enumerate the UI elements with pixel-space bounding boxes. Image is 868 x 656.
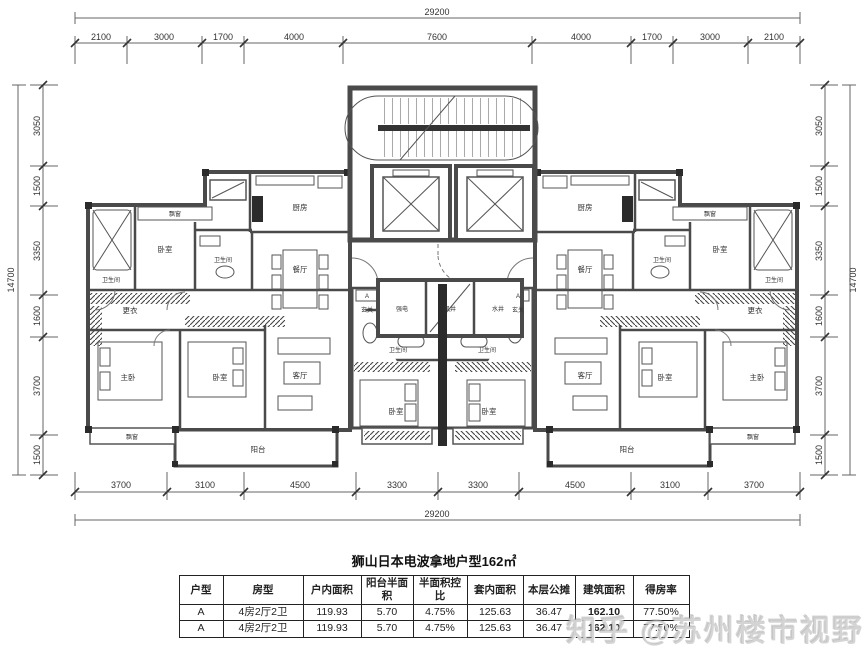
dim-bottom-seg: 3100 xyxy=(195,480,215,490)
room-label-entry: 玄关 xyxy=(361,306,373,314)
dim-top-seg: 3000 xyxy=(154,32,174,42)
dimension-left: 14700 3050 1500 3350 1600 3700 1500 xyxy=(6,81,58,479)
dim-left-total: 14700 xyxy=(6,267,16,292)
room-label-kitchen: 厨房 xyxy=(578,202,593,212)
dim-right-seg: 1600 xyxy=(814,306,824,326)
col-header: 阳台半面积 xyxy=(361,576,413,605)
col-header: 本层公摊 xyxy=(523,576,575,605)
shaft-label-water: 水井 xyxy=(492,305,504,313)
dim-bottom-seg: 4500 xyxy=(565,480,585,490)
room-label-bath: 卫生间 xyxy=(389,346,407,354)
room-label-bedroom: 卧室 xyxy=(482,406,497,416)
dimension-right: 14700 3050 1500 3350 1600 3700 1500 xyxy=(810,81,858,479)
cell-room-type: 4房2厅2卫 xyxy=(223,621,303,637)
room-label-dining: 餐厅 xyxy=(293,265,308,274)
dim-right-seg: 3050 xyxy=(814,116,824,136)
col-header: 户内面积 xyxy=(303,576,361,605)
room-label-bath: 卫生间 xyxy=(478,346,496,354)
dim-bottom-seg: 3300 xyxy=(387,480,407,490)
room-label-bay: 飘窗 xyxy=(747,433,759,441)
dim-bottom-seg: 3700 xyxy=(111,480,131,490)
unit-tag: A xyxy=(516,294,520,300)
dim-left-seg: 3050 xyxy=(32,116,42,136)
col-header: 得房率 xyxy=(633,576,689,605)
room-label-bedroom: 卧室 xyxy=(389,406,404,416)
room-label-bedroom: 卧室 xyxy=(213,372,228,382)
dim-top-seg: 1700 xyxy=(642,32,662,42)
col-header: 户型 xyxy=(179,576,223,605)
cell-suite-area: 125.63 xyxy=(467,605,523,621)
dim-top-seg: 2100 xyxy=(764,32,784,42)
room-label-bedroom: 卧室 xyxy=(713,244,728,254)
room-label-bath: 卫生间 xyxy=(102,276,120,284)
dimension-top: 29200 2100 3000 1700 4000 7600 4000 1700… xyxy=(71,7,804,64)
dim-bottom-seg: 3300 xyxy=(468,480,488,490)
unit-tag: A xyxy=(365,294,369,300)
shaft-label-wind: 风井 xyxy=(444,305,456,313)
room-label-bedroom: 卧室 xyxy=(158,244,173,254)
floor-plan-drawing: 29200 2100 3000 1700 4000 7600 4000 1700… xyxy=(0,0,868,545)
dim-top-seg: 4000 xyxy=(284,32,304,42)
dim-left-seg: 1500 xyxy=(32,445,42,465)
col-header: 房型 xyxy=(223,576,303,605)
room-label-balcony: 阳台 xyxy=(620,444,635,454)
room-label-dining: 餐厅 xyxy=(578,265,593,274)
plan-title: 狮山日本电波拿地户型162㎡ xyxy=(0,551,868,570)
room-label-dressing: 更衣 xyxy=(748,305,763,315)
cell-half-area-ratio: 4.75% xyxy=(413,621,467,637)
room-label-bay: 飘窗 xyxy=(126,433,138,441)
col-header: 建筑面积 xyxy=(575,576,633,605)
dim-top-total: 29200 xyxy=(424,7,449,17)
dim-top-seg: 3000 xyxy=(700,32,720,42)
dim-top-seg: 7600 xyxy=(427,32,447,42)
table-header-row: 户型 房型 户内面积 阳台半面积 半面积控比 套内面积 本层公摊 建筑面积 得房… xyxy=(179,576,689,605)
room-label-master: 主卧 xyxy=(750,372,765,382)
room-label-entry: 玄关 xyxy=(512,306,524,314)
dim-top-seg: 1700 xyxy=(213,32,233,42)
room-label-bay: 飘窗 xyxy=(169,210,181,218)
col-header: 半面积控比 xyxy=(413,576,467,605)
shaft-label-electric: 强电 xyxy=(396,305,408,313)
cell-half-area-ratio: 4.75% xyxy=(413,605,467,621)
cell-room-type: 4房2厅2卫 xyxy=(223,605,303,621)
dimension-bottom: 3700 3100 4500 3300 3300 4500 3100 3700 … xyxy=(71,472,804,526)
room-label-bath: 卫生间 xyxy=(653,256,671,264)
dim-bottom-seg: 4500 xyxy=(290,480,310,490)
dim-right-seg: 3700 xyxy=(814,376,824,396)
room-label-dressing: 更衣 xyxy=(123,305,138,315)
dim-left-seg: 3700 xyxy=(32,376,42,396)
room-label-living: 客厅 xyxy=(293,370,308,380)
dim-right-seg: 3350 xyxy=(814,241,824,261)
dim-bottom-total: 29200 xyxy=(424,509,449,519)
col-header: 套内面积 xyxy=(467,576,523,605)
room-label-kitchen: 厨房 xyxy=(293,202,308,212)
room-label-bath: 卫生间 xyxy=(765,276,783,284)
room-label-bath: 卫生间 xyxy=(214,256,232,264)
cell-indoor-area: 119.93 xyxy=(303,605,361,621)
room-label-master: 主卧 xyxy=(121,372,136,382)
dim-bottom-seg: 3700 xyxy=(744,480,764,490)
dim-right-seg: 1500 xyxy=(814,445,824,465)
room-label-balcony: 阳台 xyxy=(251,444,266,454)
dim-top-seg: 4000 xyxy=(571,32,591,42)
cell-balcony-half-area: 5.70 xyxy=(361,605,413,621)
cell-unit-type: A xyxy=(179,621,223,637)
dim-left-seg: 3350 xyxy=(32,241,42,261)
cell-unit-type: A xyxy=(179,605,223,621)
cell-indoor-area: 119.93 xyxy=(303,621,361,637)
dim-right-seg: 1500 xyxy=(814,176,824,196)
room-label-bedroom: 卧室 xyxy=(658,372,673,382)
dim-left-seg: 1500 xyxy=(32,176,42,196)
dim-right-total: 14700 xyxy=(848,267,858,292)
cell-suite-area: 125.63 xyxy=(467,621,523,637)
dim-top-seg: 2100 xyxy=(91,32,111,42)
watermark: 知乎 @苏州楼市视野 xyxy=(566,606,864,650)
dim-left-seg: 1600 xyxy=(32,306,42,326)
room-label-bay: 飘窗 xyxy=(704,210,716,218)
room-label-living: 客厅 xyxy=(578,370,593,380)
cell-balcony-half-area: 5.70 xyxy=(361,621,413,637)
floor-plan-page: 29200 2100 3000 1700 4000 7600 4000 1700… xyxy=(0,0,868,656)
dim-bottom-seg: 3100 xyxy=(660,480,680,490)
